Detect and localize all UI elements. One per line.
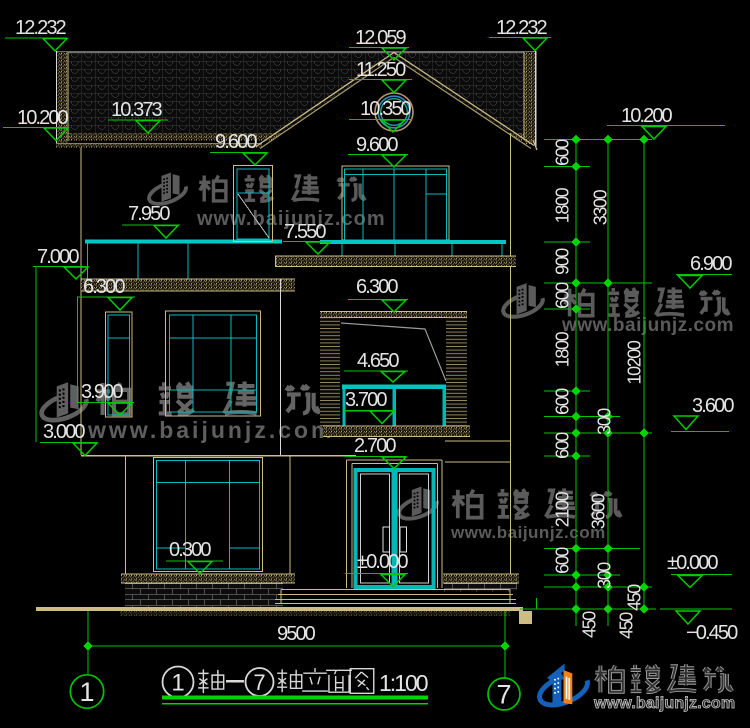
- svg-text:3.900: 3.900: [81, 381, 123, 403]
- svg-text:900: 900: [553, 248, 573, 275]
- svg-text:7: 7: [253, 670, 265, 695]
- svg-text:6.300: 6.300: [356, 276, 398, 298]
- svg-text:10.200: 10.200: [17, 107, 69, 129]
- svg-text:3.000: 3.000: [43, 421, 85, 443]
- svg-text:9.600: 9.600: [356, 134, 398, 156]
- svg-text:2100: 2100: [553, 491, 573, 527]
- svg-text:600: 600: [553, 388, 573, 415]
- svg-text:3.600: 3.600: [692, 395, 734, 417]
- svg-text:450: 450: [580, 611, 600, 638]
- svg-text:12.232: 12.232: [496, 17, 548, 39]
- svg-text:7.550: 7.550: [284, 221, 326, 243]
- svg-text:1: 1: [171, 670, 184, 697]
- svg-text:www.baijunjz.com: www.baijunjz.com: [87, 417, 335, 443]
- svg-text:2.700: 2.700: [354, 435, 396, 457]
- svg-text:3.700: 3.700: [345, 389, 387, 411]
- svg-text:3600: 3600: [589, 493, 609, 529]
- svg-text:±0.000: ±0.000: [357, 551, 408, 573]
- svg-text:www.baijunjz.com: www.baijunjz.com: [450, 523, 606, 542]
- svg-text:www.baijunjz.com: www.baijunjz.com: [593, 695, 735, 712]
- svg-text:10.373: 10.373: [111, 99, 163, 121]
- svg-text:1800: 1800: [553, 331, 573, 367]
- svg-text:±0.000: ±0.000: [667, 552, 718, 574]
- svg-text:600: 600: [553, 547, 573, 574]
- svg-text:7.950: 7.950: [128, 203, 170, 225]
- svg-text:1: 1: [79, 677, 94, 707]
- svg-text:6.300: 6.300: [83, 276, 125, 298]
- svg-text:10.350: 10.350: [360, 98, 412, 120]
- svg-text:450: 450: [625, 584, 645, 611]
- svg-text:300: 300: [595, 562, 615, 589]
- svg-text:1800: 1800: [553, 187, 573, 223]
- svg-text:450: 450: [617, 612, 637, 639]
- svg-text:12.232: 12.232: [15, 17, 67, 39]
- svg-text:−0.450: −0.450: [686, 622, 738, 644]
- svg-text:www.baijunjz.com: www.baijunjz.com: [561, 315, 734, 336]
- svg-text:9.600: 9.600: [215, 131, 257, 153]
- svg-text:3300: 3300: [591, 189, 611, 225]
- svg-text:10200: 10200: [625, 340, 645, 384]
- svg-text:300: 300: [595, 408, 615, 435]
- svg-text:11.250: 11.250: [356, 59, 406, 81]
- svg-text:0.300: 0.300: [169, 539, 211, 561]
- svg-text:12.059: 12.059: [355, 27, 407, 49]
- svg-text:600: 600: [553, 432, 573, 459]
- svg-text:10.200: 10.200: [621, 105, 673, 127]
- svg-text:4.650: 4.650: [357, 350, 399, 372]
- svg-text:600: 600: [553, 139, 573, 166]
- svg-text:600: 600: [553, 282, 573, 309]
- svg-text:7.000: 7.000: [37, 246, 79, 268]
- svg-text:6.900: 6.900: [690, 253, 732, 275]
- svg-text:9500: 9500: [277, 623, 316, 645]
- svg-text:1:100: 1:100: [379, 670, 428, 696]
- svg-text:7: 7: [496, 680, 511, 710]
